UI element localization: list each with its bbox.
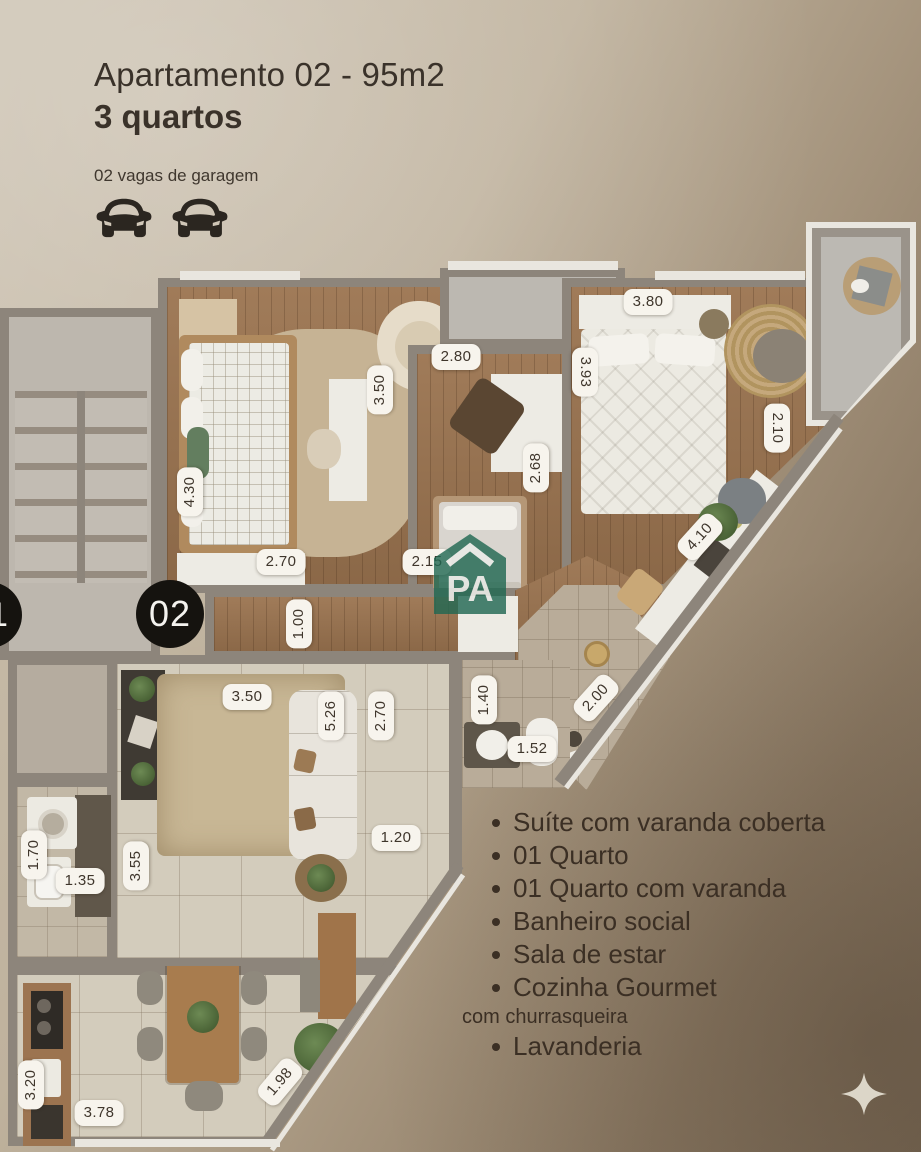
dimension-label-cozinha: 3.20 (18, 1061, 44, 1110)
dimension-label-hall: 1.00 (286, 600, 312, 649)
dimension-label-varanda-quarto-2: 3.50 (367, 366, 393, 415)
pa-logo: PA (434, 534, 506, 619)
logo-text: PA (446, 568, 493, 609)
dimension-label-suite: 3.93 (572, 348, 598, 397)
dimension-label-cozinha: 1.98 (254, 1055, 305, 1109)
dimension-label-banheiro-social: 1.20 (372, 825, 421, 851)
dimension-label-lavanderia: 1.70 (21, 831, 47, 880)
dimension-label-sala: 3.50 (223, 684, 272, 710)
dimension-label-sala: 5.26 (318, 692, 344, 741)
dimension-label-lavanderia: 1.35 (56, 868, 105, 894)
dimension-label-banheiro-suite: 2.00 (570, 671, 622, 725)
dimension-label-banheiro: 1.40 (471, 676, 497, 725)
unit-number: 02 (149, 593, 191, 635)
dimension-label-banheiro: 1.52 (508, 736, 557, 762)
dimension-label-cozinha: 3.78 (75, 1100, 124, 1126)
dimension-label-quarto-2: 2.80 (432, 344, 481, 370)
unit-number: 01 (0, 596, 9, 635)
dimension-label-sala: 3.55 (123, 842, 149, 891)
unit-badge-current: 02 (136, 580, 204, 648)
dimension-label-banheiro-social: 2.70 (368, 692, 394, 741)
dimension-label-suite: 2.10 (764, 404, 790, 453)
dimension-label-quarto-1: 4.30 (177, 468, 203, 517)
dimension-label-quarto-1: 2.70 (257, 549, 306, 575)
floorplan-poster: Apartamento 02 - 95m2 3 quartos 02 vagas… (0, 0, 921, 1152)
dimension-label-suite: 3.80 (624, 289, 673, 315)
dimension-label-quarto-2: 2.68 (523, 444, 549, 493)
dimension-label-suite: 4.10 (674, 510, 726, 564)
